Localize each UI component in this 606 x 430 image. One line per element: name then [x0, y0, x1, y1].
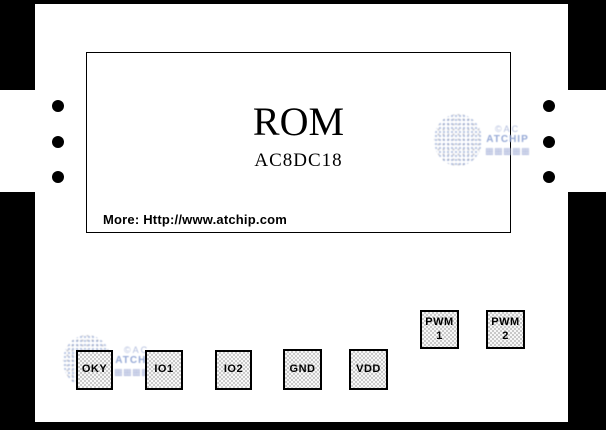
frame-top-edge: [0, 0, 606, 4]
pad-sublabel: 2: [502, 330, 509, 344]
bond-dot-right-1: [543, 100, 555, 112]
frame-right-bottom-block: [568, 192, 606, 430]
pad-label: PWM: [425, 316, 453, 330]
frame-bottom-edge: [0, 422, 606, 430]
watermark-line1: ©AC: [495, 124, 520, 134]
pad-label: IO1: [154, 363, 173, 377]
website-link[interactable]: More: Http://www.atchip.com: [103, 212, 287, 227]
pad-pwm1: PWM 1: [420, 310, 459, 349]
pad-sublabel: 1: [436, 330, 443, 344]
pad-io1: IO1: [145, 350, 183, 390]
pad-label: GND: [290, 363, 316, 377]
globe-icon: [434, 114, 482, 166]
pad-label: IO2: [224, 363, 243, 377]
bond-dot-left-2: [52, 136, 64, 148]
frame-left-bottom-block: [0, 192, 35, 430]
pad-label: PWM: [491, 316, 519, 330]
chip-bonding-diagram: ©AC ATCHIP ▦▦▦▦▦ ROM AC8DC18 More: Http:…: [0, 0, 606, 430]
pad-vdd: VDD: [349, 349, 388, 390]
atchip-watermark-logo: ©AC ATCHIP ▦▦▦▦▦: [434, 114, 530, 166]
pad-oky: OKY: [76, 350, 113, 390]
bond-dot-left-1: [52, 100, 64, 112]
pad-label: OKY: [82, 363, 107, 377]
pad-io2: IO2: [215, 350, 252, 390]
watermark-text: ©AC ATCHIP ▦▦▦▦▦: [485, 124, 530, 156]
frame-left-top-block: [0, 0, 35, 90]
watermark-line2: ATCHIP: [486, 134, 528, 146]
pad-pwm2: PWM 2: [486, 310, 525, 349]
pad-gnd: GND: [283, 349, 322, 390]
frame-right-top-block: [568, 0, 606, 90]
bond-dot-right-2: [543, 136, 555, 148]
pad-label: VDD: [356, 363, 381, 377]
watermark-line3: ▦▦▦▦▦: [485, 146, 530, 156]
bond-dot-right-3: [543, 171, 555, 183]
bond-dot-left-3: [52, 171, 64, 183]
